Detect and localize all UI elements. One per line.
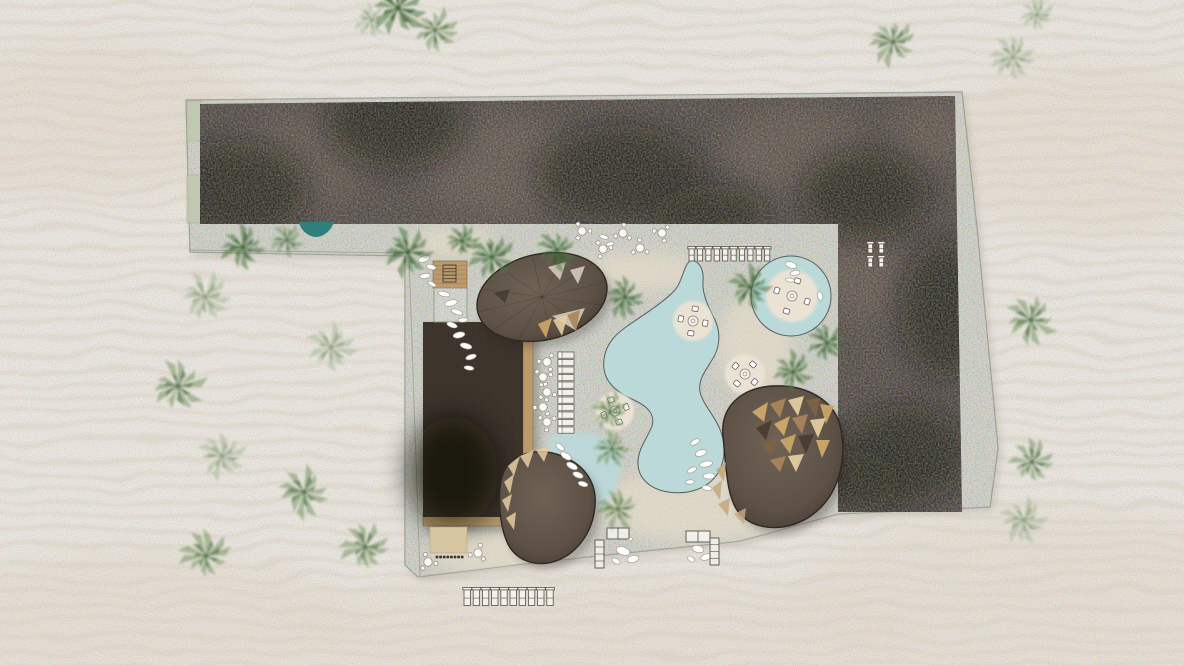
bistro-table bbox=[578, 227, 586, 235]
lounger-headrest bbox=[730, 247, 738, 249]
pebble-boulder bbox=[685, 479, 694, 484]
sun-lounger-column bbox=[558, 352, 574, 433]
bistro-chair bbox=[533, 405, 537, 409]
lounger-headrest bbox=[688, 247, 696, 249]
lounger-headrest bbox=[878, 242, 885, 244]
sun-lounger-icon bbox=[706, 248, 711, 261]
sun-lounger-icon bbox=[689, 248, 694, 261]
sun-lounger-icon bbox=[868, 257, 873, 267]
bistro-chair bbox=[434, 561, 438, 566]
table-icon bbox=[688, 316, 698, 326]
bistro-chair bbox=[588, 229, 592, 233]
lounger-headrest bbox=[509, 588, 518, 590]
bistro-table bbox=[543, 418, 551, 426]
sun-lounger-icon bbox=[879, 243, 884, 253]
bistro-table bbox=[599, 245, 607, 253]
lounger-headrest bbox=[536, 588, 545, 590]
chair-icon bbox=[702, 320, 708, 327]
lounger-pillow bbox=[558, 367, 562, 373]
bistro-table bbox=[658, 229, 666, 237]
lounger-pillow bbox=[558, 427, 562, 433]
lounger-headrest bbox=[705, 247, 713, 249]
planter-bed bbox=[187, 101, 201, 141]
site-plan bbox=[0, 0, 1184, 666]
bistro-chair bbox=[662, 238, 667, 243]
lounger-pillow bbox=[558, 412, 562, 418]
sand-court-patch bbox=[430, 527, 467, 553]
sun-lounger-icon bbox=[748, 248, 753, 261]
bistro-table bbox=[636, 244, 644, 252]
sun-lounger-icon bbox=[528, 589, 534, 606]
bead-marker bbox=[457, 556, 460, 559]
bead-marker bbox=[436, 556, 439, 559]
lounger-pillow bbox=[558, 352, 562, 358]
lounger-headrest bbox=[463, 588, 472, 590]
lounger-headrest bbox=[867, 242, 874, 244]
sun-lounger-icon bbox=[739, 248, 744, 261]
lounger-headrest bbox=[763, 247, 771, 249]
bistro-chair bbox=[638, 238, 642, 242]
lounger-headrest bbox=[878, 256, 885, 258]
table-icon bbox=[740, 369, 750, 379]
lounger-headrest bbox=[518, 588, 527, 590]
sun-lounger-icon bbox=[723, 248, 728, 261]
bistro-chair bbox=[652, 229, 656, 234]
lounger-headrest bbox=[490, 588, 499, 590]
lounger-pillow bbox=[558, 405, 562, 411]
sun-lounger-icon bbox=[697, 248, 702, 261]
pebble-boulder bbox=[703, 473, 715, 479]
sun-lounger-icon bbox=[538, 589, 544, 606]
pool-island bbox=[766, 270, 818, 322]
bistro-table bbox=[539, 373, 547, 381]
lounger-pillow bbox=[558, 360, 562, 366]
bistro-table bbox=[543, 358, 551, 366]
lounger-headrest bbox=[546, 588, 555, 590]
lounger-headrest bbox=[500, 588, 509, 590]
sun-lounger-icon bbox=[756, 248, 761, 261]
bistro-chair bbox=[544, 428, 548, 432]
bistro-chair bbox=[539, 383, 544, 387]
sun-lounger-icon bbox=[464, 589, 470, 606]
bead-marker bbox=[439, 556, 442, 559]
lounger-headrest bbox=[721, 247, 729, 249]
bead-marker bbox=[454, 556, 457, 559]
sun-lounger-icon bbox=[765, 248, 770, 261]
bistro-chair bbox=[548, 372, 553, 377]
lounger-pillow bbox=[558, 420, 562, 426]
sun-lounger-icon bbox=[482, 589, 488, 606]
bistro-table bbox=[539, 403, 547, 411]
sun-lounger-icon bbox=[519, 589, 525, 606]
bistro-table bbox=[619, 229, 627, 237]
bistro-chair bbox=[537, 359, 541, 363]
sun-lounger-icon bbox=[510, 589, 516, 606]
bistro-chair bbox=[468, 552, 472, 557]
bistro-chair bbox=[543, 382, 548, 386]
lounger-pillow bbox=[558, 397, 562, 403]
lounger-headrest bbox=[867, 256, 874, 258]
bistro-table bbox=[474, 549, 482, 557]
lounger-headrest bbox=[481, 588, 490, 590]
lounger-headrest bbox=[747, 247, 755, 249]
lounger-headrest bbox=[472, 588, 481, 590]
lounger-pillow bbox=[558, 375, 562, 381]
site-plan-canvas bbox=[0, 0, 1184, 666]
bistro-table bbox=[543, 388, 551, 396]
lounger-pillow bbox=[558, 390, 562, 396]
sun-lounger-icon bbox=[492, 589, 498, 606]
lounger-headrest bbox=[755, 247, 763, 249]
lounger-pillow bbox=[558, 382, 562, 388]
lounger-headrest bbox=[696, 247, 704, 249]
bistro-table bbox=[424, 558, 432, 566]
table-icon bbox=[787, 291, 797, 301]
lounger-headrest bbox=[738, 247, 746, 249]
chair-icon bbox=[692, 306, 699, 312]
building-roof-shade bbox=[408, 417, 498, 527]
sun-lounger-icon bbox=[731, 248, 736, 261]
chair-icon bbox=[687, 330, 694, 336]
pool-island bbox=[673, 301, 713, 341]
lounger-headrest bbox=[527, 588, 536, 590]
sun-lounger-icon bbox=[868, 243, 873, 253]
sun-lounger-icon bbox=[714, 248, 719, 261]
bistro-chair bbox=[609, 245, 613, 250]
palm-crown-center bbox=[1030, 460, 1034, 464]
sun-lounger-icon bbox=[547, 589, 553, 606]
bead-marker bbox=[450, 556, 453, 559]
bistro-chair bbox=[478, 543, 483, 548]
bead-marker bbox=[461, 556, 464, 559]
sun-lounger-icon bbox=[473, 589, 479, 606]
bead-marker bbox=[446, 556, 449, 559]
bistro-chair bbox=[622, 223, 626, 227]
sun-lounger-icon bbox=[879, 257, 884, 267]
sun-lounger-icon bbox=[501, 589, 507, 606]
bead-marker bbox=[443, 556, 446, 559]
lounger-headrest bbox=[713, 247, 721, 249]
chair-icon bbox=[678, 315, 684, 322]
